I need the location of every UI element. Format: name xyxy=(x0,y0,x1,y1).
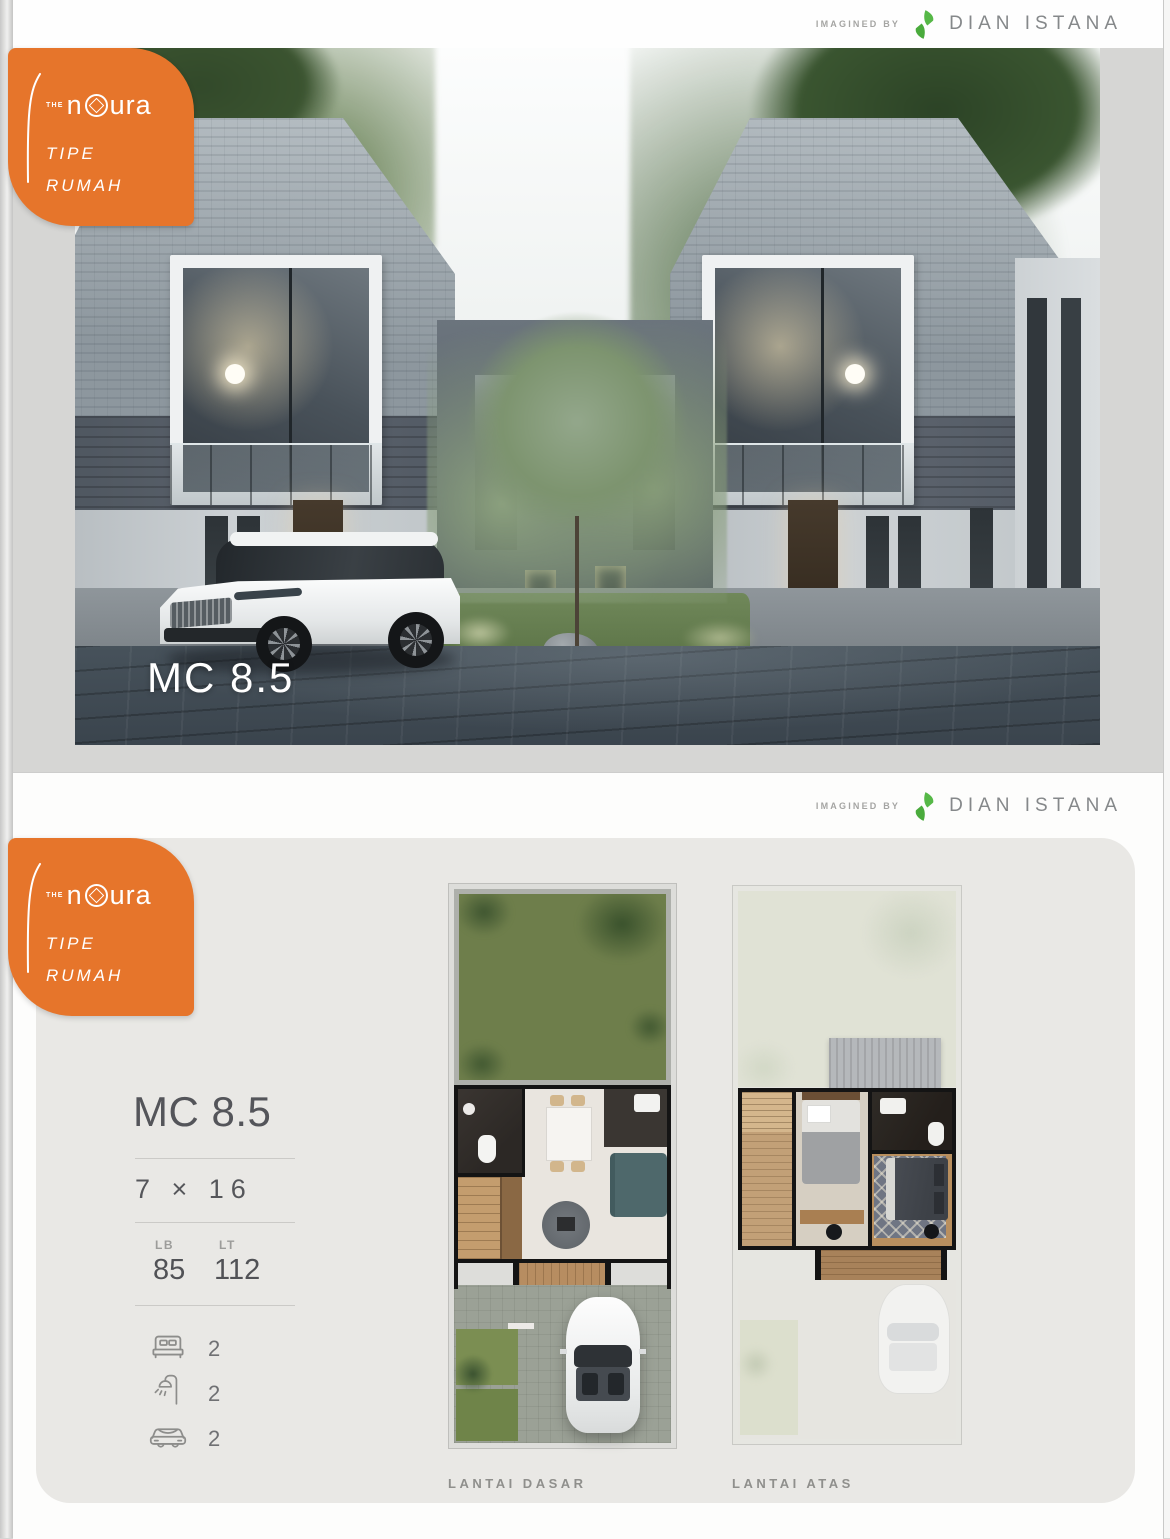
car-seat xyxy=(608,1373,624,1395)
unit-type-title: MC 8.5 xyxy=(133,1088,271,1136)
house-right-balcony xyxy=(702,255,914,505)
car-mirror xyxy=(560,1349,567,1354)
ghost-car-top-view xyxy=(878,1284,950,1394)
badge-tagline-1: TIPE xyxy=(46,144,96,164)
noura-o-glyph: o xyxy=(85,94,108,117)
pillow xyxy=(934,1164,944,1186)
wall xyxy=(522,1089,525,1173)
neighbour-unit-wall xyxy=(1015,258,1100,630)
sink xyxy=(463,1103,475,1115)
page-edge-right xyxy=(1163,0,1170,1538)
sheet-fold xyxy=(886,1158,895,1220)
sofa xyxy=(610,1153,667,1217)
car-windshield xyxy=(574,1345,632,1367)
floorplan-upper-label: LANTAI ATAS xyxy=(732,1476,854,1491)
car-mirror xyxy=(639,1349,646,1354)
noura-n-text: n xyxy=(67,92,83,119)
floorplan-ground-label: LANTAI DASAR xyxy=(448,1476,587,1491)
ground-floor-interior xyxy=(454,1085,671,1263)
car-rear-wheel xyxy=(388,612,444,668)
single-bed xyxy=(802,1100,860,1184)
round-rug xyxy=(542,1201,590,1249)
toilet xyxy=(478,1135,496,1163)
car-roof xyxy=(230,532,438,546)
noura-the-text: THE xyxy=(46,892,64,899)
badge-tagline-2: RUMAH xyxy=(46,176,123,196)
kitchen-sink xyxy=(634,1094,660,1112)
divider xyxy=(135,1222,295,1223)
desk-chair xyxy=(924,1224,939,1239)
feature-row-bedrooms xyxy=(150,1330,186,1365)
garden-tree xyxy=(454,1036,515,1085)
bedroom-2 xyxy=(796,1092,868,1246)
wall xyxy=(667,1263,671,1289)
carport-driveway xyxy=(454,1285,671,1443)
car-cabin xyxy=(576,1367,630,1401)
wall xyxy=(941,1250,947,1282)
balcony-glass-rail xyxy=(170,443,382,505)
carport-count: 2 xyxy=(208,1426,220,1452)
neighbour-window xyxy=(1061,298,1081,598)
upper-floor-interior xyxy=(738,1088,956,1250)
noura-logo: THE n o ura xyxy=(46,92,152,119)
balcony-globe-lamp xyxy=(845,364,865,384)
kitchen xyxy=(604,1089,667,1147)
garden-tree xyxy=(622,1002,671,1052)
noura-o-glyph: o xyxy=(85,884,108,907)
faded-driveway-below xyxy=(738,1280,956,1439)
lower-roof-strip xyxy=(829,1038,941,1088)
house-left-balcony xyxy=(170,255,382,505)
floorplan-ground xyxy=(448,883,677,1449)
car-icon xyxy=(148,1421,188,1448)
badge-tagline-2: RUMAH xyxy=(46,966,123,986)
dian-istana-leaf-icon xyxy=(912,791,937,822)
imagined-by-lockup: IMAGINED BY DIAN ISTANA xyxy=(816,7,1122,41)
bedroom-count: 2 xyxy=(208,1336,220,1362)
unit-dimensions: 7 × 16 xyxy=(135,1174,253,1205)
spec-value-lt: 112 xyxy=(214,1254,260,1287)
garden-tree xyxy=(454,889,521,944)
car-seat xyxy=(582,1373,598,1395)
divider xyxy=(135,1158,295,1159)
house-right xyxy=(670,118,1070,630)
dining-chair xyxy=(571,1095,585,1106)
balcony-deck xyxy=(821,1250,941,1280)
ghost-car-cabin xyxy=(889,1343,937,1371)
wall xyxy=(815,1250,821,1282)
pillow xyxy=(934,1192,944,1214)
dining-table xyxy=(546,1107,592,1161)
hallway-wood-floor xyxy=(742,1092,792,1246)
house-type-label: MC 8.5 xyxy=(147,654,294,702)
noura-rest-text: ura xyxy=(110,882,152,909)
badge-bracket-icon xyxy=(24,72,44,184)
bathroom-count: 2 xyxy=(208,1381,220,1407)
faded-tree xyxy=(846,891,956,993)
bathroom-upper xyxy=(872,1092,952,1150)
spec-value-lb: 85 xyxy=(153,1254,185,1287)
wall xyxy=(605,1263,611,1287)
divider xyxy=(135,1305,295,1306)
noura-n-text: n xyxy=(67,882,83,909)
dian-istana-leaf-icon xyxy=(912,9,937,40)
double-bed xyxy=(886,1158,948,1220)
faded-plant xyxy=(732,1340,780,1388)
brand-name-text: DIAN ISTANA xyxy=(949,13,1122,35)
house-exterior-photo: MC 8.5 xyxy=(75,48,1100,745)
bathroom xyxy=(458,1089,522,1173)
dining-chair xyxy=(550,1161,564,1172)
floorplan-upper xyxy=(732,885,962,1445)
brand-name-text: DIAN ISTANA xyxy=(949,795,1122,817)
noura-the-text: THE xyxy=(46,102,64,109)
backyard-garden xyxy=(454,889,671,1085)
desk xyxy=(800,1210,864,1224)
noura-badge: THE n o ura TIPE RUMAH xyxy=(8,838,194,1016)
staircase xyxy=(458,1177,500,1259)
garden-tree xyxy=(562,889,671,974)
page-edge-left xyxy=(0,0,13,1538)
sink xyxy=(880,1098,906,1114)
spec-label-lt: LT xyxy=(219,1238,236,1252)
blanket xyxy=(802,1132,860,1184)
dining-chair xyxy=(550,1095,564,1106)
balcony-glass-rail xyxy=(702,443,914,505)
shower-icon xyxy=(152,1374,186,1406)
car-top-view xyxy=(566,1297,640,1433)
wall xyxy=(513,1263,519,1287)
imagined-by-text: IMAGINED BY xyxy=(816,19,900,29)
badge-bracket-icon xyxy=(24,862,44,974)
terrace-deck xyxy=(519,1263,605,1285)
gate xyxy=(508,1323,534,1329)
spec-label-lb: LB xyxy=(155,1238,174,1252)
noura-logo: THE n o ura xyxy=(46,882,152,909)
wall xyxy=(454,1263,458,1289)
pillow xyxy=(807,1105,831,1123)
bedroom-1 xyxy=(872,1154,952,1246)
palm-plant xyxy=(446,1347,500,1401)
imagined-by-text: IMAGINED BY xyxy=(816,801,900,811)
balcony-globe-lamp xyxy=(225,364,245,384)
badge-tagline-1: TIPE xyxy=(46,934,96,954)
media-console xyxy=(557,1217,575,1231)
courtyard-tree-trunk xyxy=(575,516,579,648)
feature-row-carports xyxy=(148,1421,188,1453)
wardrobe xyxy=(500,1177,522,1259)
car-grille xyxy=(170,597,232,628)
feature-row-bathrooms xyxy=(152,1374,186,1411)
desk-chair xyxy=(826,1224,842,1240)
faded-tree xyxy=(738,1033,804,1087)
stair-void xyxy=(742,1092,792,1132)
dining-chair xyxy=(571,1161,585,1172)
toilet xyxy=(928,1122,944,1146)
bed-icon xyxy=(150,1330,186,1360)
neighbour-window xyxy=(1027,298,1047,598)
noura-badge: THE n o ura TIPE RUMAH xyxy=(8,48,194,226)
bed-headboard xyxy=(802,1092,860,1100)
brochure-canvas: IMAGINED BY DIAN ISTANA xyxy=(0,0,1170,1538)
noura-rest-text: ura xyxy=(110,92,152,119)
imagined-by-lockup: IMAGINED BY DIAN ISTANA xyxy=(816,789,1122,823)
ghost-car-windshield xyxy=(887,1323,939,1341)
